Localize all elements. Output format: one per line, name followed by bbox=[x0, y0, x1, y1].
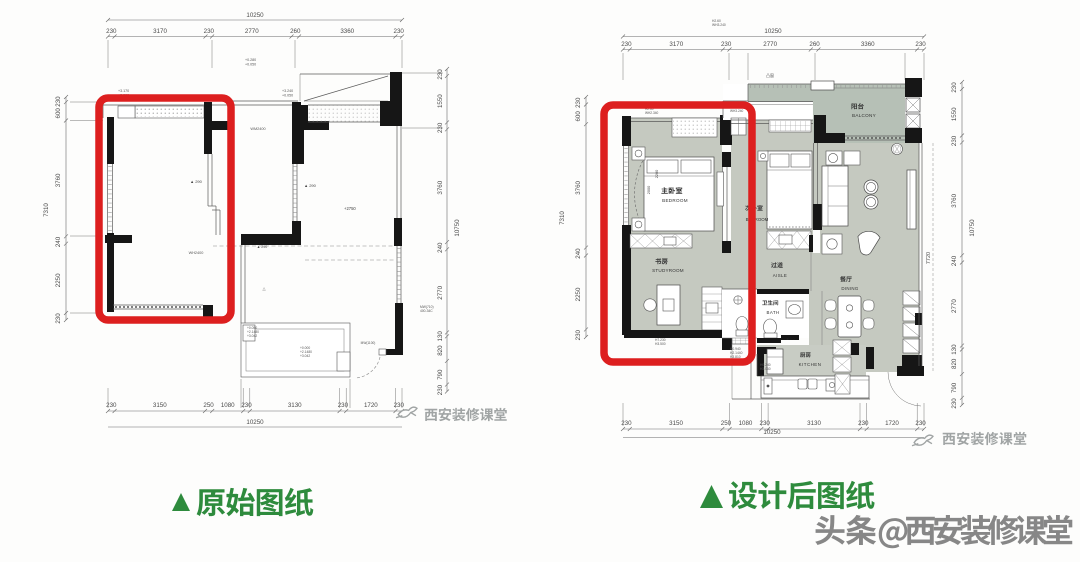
svg-text:凸窗: 凸窗 bbox=[766, 72, 774, 78]
svg-text:230: 230 bbox=[394, 28, 405, 35]
svg-text:790: 790 bbox=[951, 382, 958, 393]
svg-text:1720: 1720 bbox=[885, 420, 899, 427]
svg-text:130: 130 bbox=[437, 331, 444, 342]
svg-text:260: 260 bbox=[290, 28, 301, 35]
svg-text:+0.050: +0.050 bbox=[245, 62, 256, 66]
svg-text:3130: 3130 bbox=[288, 402, 302, 409]
svg-text:230: 230 bbox=[951, 398, 958, 409]
svg-text:3150: 3150 bbox=[669, 420, 683, 427]
svg-text:3760: 3760 bbox=[55, 173, 62, 187]
svg-text:7310: 7310 bbox=[559, 211, 566, 225]
svg-text:2770: 2770 bbox=[245, 28, 259, 35]
svg-text:10250: 10250 bbox=[246, 419, 264, 426]
svg-text:790: 790 bbox=[437, 369, 444, 380]
svg-text:3760: 3760 bbox=[437, 180, 444, 194]
svg-text:10750: 10750 bbox=[969, 219, 976, 237]
svg-text:+3.170: +3.170 bbox=[118, 89, 129, 93]
svg-text:240: 240 bbox=[575, 248, 582, 259]
svg-text:3760: 3760 bbox=[575, 180, 582, 194]
svg-text:3150: 3150 bbox=[153, 402, 167, 409]
svg-text:230: 230 bbox=[915, 41, 926, 48]
svg-text:230: 230 bbox=[55, 313, 62, 324]
svg-text:+3.042: +3.042 bbox=[300, 354, 310, 358]
svg-text:◄ 0 0: ◄ 0 0 bbox=[785, 337, 794, 341]
svg-text:2770: 2770 bbox=[437, 285, 444, 299]
svg-text:230: 230 bbox=[437, 384, 444, 395]
svg-text:2000: 2000 bbox=[647, 186, 651, 194]
svg-text:3360: 3360 bbox=[340, 28, 354, 35]
svg-text:820: 820 bbox=[437, 345, 444, 356]
svg-text:+2750: +2750 bbox=[344, 206, 356, 211]
svg-text:240: 240 bbox=[951, 255, 958, 266]
svg-text:KITCHEN: KITCHEN bbox=[799, 362, 822, 367]
svg-text:600: 600 bbox=[55, 108, 62, 119]
svg-text:WH3.240: WH3.240 bbox=[712, 23, 726, 27]
svg-text:230: 230 bbox=[721, 41, 732, 48]
svg-text:3760: 3760 bbox=[951, 193, 958, 207]
svg-text:+3.042: +3.042 bbox=[247, 334, 257, 338]
svg-text:230: 230 bbox=[394, 402, 405, 409]
svg-text:7310: 7310 bbox=[43, 203, 50, 217]
svg-text:230: 230 bbox=[55, 96, 62, 107]
svg-text:+0.050: +0.050 bbox=[282, 93, 293, 97]
svg-text:250: 250 bbox=[203, 402, 214, 409]
svg-text:230: 230 bbox=[575, 329, 582, 340]
svg-text:230: 230 bbox=[575, 97, 582, 108]
svg-text:3360: 3360 bbox=[861, 41, 875, 48]
svg-text:1550: 1550 bbox=[951, 107, 958, 121]
svg-text:230: 230 bbox=[437, 122, 444, 133]
svg-text:▲ 290: ▲ 290 bbox=[257, 245, 268, 249]
svg-text:H3.500: H3.500 bbox=[655, 342, 666, 346]
svg-text:400-34C: 400-34C bbox=[420, 309, 433, 313]
svg-text:MW(1100): MW(1100) bbox=[361, 341, 376, 345]
svg-text:WH2.340: WH2.340 bbox=[645, 111, 659, 115]
svg-text:240: 240 bbox=[437, 242, 444, 253]
svg-text:7720: 7720 bbox=[926, 252, 932, 264]
svg-text:WM2400: WM2400 bbox=[250, 127, 265, 131]
svg-text:BATH: BATH bbox=[767, 310, 780, 315]
svg-text:250: 250 bbox=[721, 420, 732, 427]
svg-text:1080: 1080 bbox=[221, 402, 235, 409]
svg-text:3170: 3170 bbox=[153, 28, 167, 35]
svg-text:230: 230 bbox=[204, 28, 215, 35]
svg-text:3170: 3170 bbox=[669, 41, 683, 48]
svg-text:130: 130 bbox=[951, 344, 958, 355]
svg-text:10250: 10250 bbox=[246, 12, 264, 19]
svg-text:2250: 2250 bbox=[575, 287, 582, 301]
svg-text:3130: 3130 bbox=[807, 420, 821, 427]
svg-text:230: 230 bbox=[621, 41, 632, 48]
svg-text:AISLE: AISLE bbox=[773, 273, 787, 278]
svg-text:820: 820 bbox=[951, 358, 958, 369]
svg-text:BALCONY: BALCONY bbox=[852, 113, 876, 118]
svg-text:2770: 2770 bbox=[951, 299, 958, 313]
svg-text:H3.060: H3.060 bbox=[760, 367, 771, 371]
svg-text:2250: 2250 bbox=[55, 273, 62, 287]
svg-text:10250: 10250 bbox=[763, 429, 781, 436]
svg-text:1720: 1720 bbox=[364, 402, 378, 409]
svg-text:230: 230 bbox=[106, 28, 117, 35]
svg-text:10250: 10250 bbox=[764, 28, 782, 35]
svg-text:+0.280: +0.280 bbox=[245, 58, 256, 62]
svg-text:DINING: DINING bbox=[841, 286, 858, 291]
svg-text:2200: 2200 bbox=[655, 170, 659, 178]
svg-text:230: 230 bbox=[951, 135, 958, 146]
svg-text:2770: 2770 bbox=[763, 41, 777, 48]
svg-text:WH3.240: WH3.240 bbox=[730, 109, 744, 113]
svg-text:1080: 1080 bbox=[739, 420, 753, 427]
svg-text:STUDYROOM: STUDYROOM bbox=[652, 268, 684, 273]
svg-text:BEDROOM: BEDROOM bbox=[662, 198, 688, 203]
svg-text:260: 260 bbox=[809, 41, 820, 48]
svg-text:▲ 290: ▲ 290 bbox=[304, 183, 317, 188]
svg-text:230: 230 bbox=[437, 69, 444, 80]
svg-text:1550: 1550 bbox=[437, 94, 444, 108]
svg-text:240: 240 bbox=[55, 236, 62, 247]
svg-text:10750: 10750 bbox=[454, 219, 461, 237]
svg-text:▲ 290: ▲ 290 bbox=[190, 179, 203, 184]
svg-text:230: 230 bbox=[951, 82, 958, 93]
svg-text:WH2400: WH2400 bbox=[189, 251, 204, 255]
svg-text:+3.240: +3.240 bbox=[282, 89, 293, 93]
svg-text:600: 600 bbox=[575, 111, 582, 122]
